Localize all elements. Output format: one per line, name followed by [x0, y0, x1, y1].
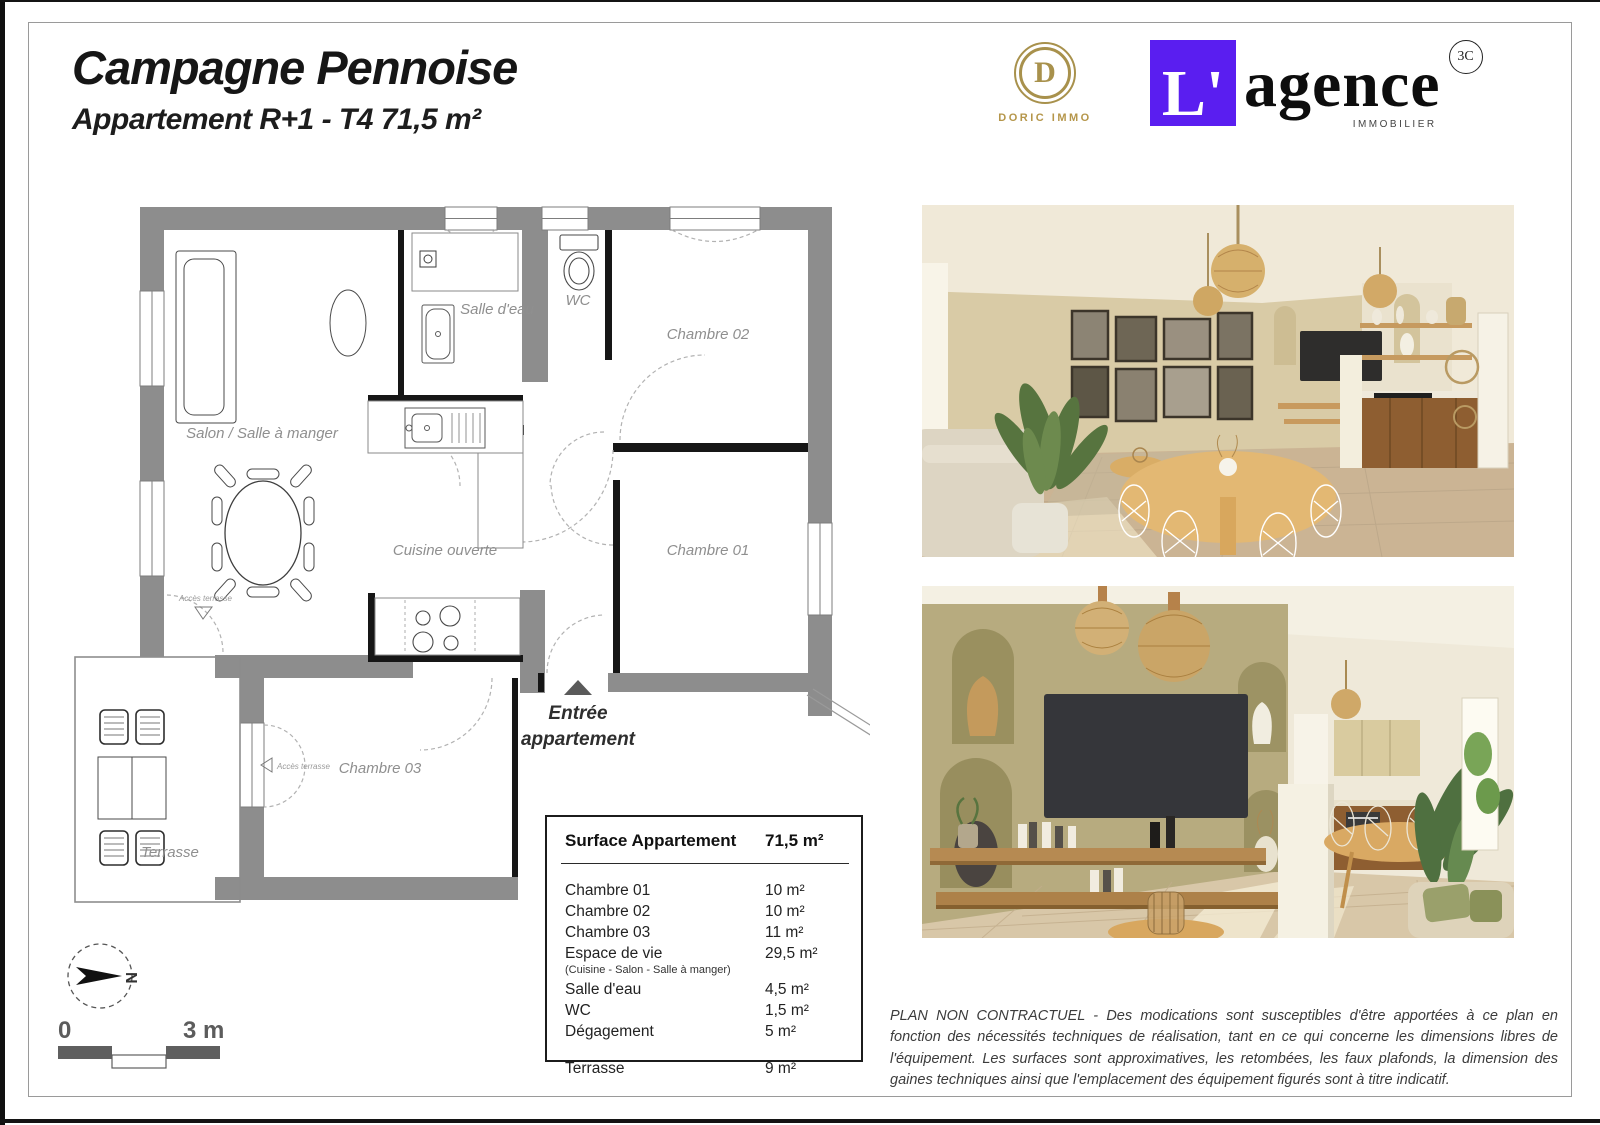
- lagence-logo: L' agence IMMOBILIER 3C: [1150, 40, 1483, 130]
- tv-wall-render: [922, 586, 1514, 938]
- doric-initial: D: [1034, 56, 1056, 90]
- living-room-render: [922, 205, 1514, 557]
- surface-header-label: Surface Appartement: [565, 831, 765, 851]
- entrance-label-1: Entrée: [548, 703, 608, 724]
- room-label-cuisine: Cuisine ouverte: [393, 542, 497, 559]
- render-photo-tv-wall: [922, 586, 1514, 938]
- bathroom-fixtures: [412, 233, 518, 363]
- page-title: Campagne Pennoise: [72, 40, 517, 95]
- white-partition: [1278, 784, 1334, 938]
- table-row: Salle d'eau4,5 m²: [565, 979, 845, 1000]
- table-row-note: (Cuisine - Salon - Salle à manger): [565, 964, 845, 977]
- acces-terrasse-arrow-salon: [195, 607, 212, 619]
- surface-table-rule: [561, 863, 849, 864]
- surface-table: Surface Appartement 71,5 m² Chambre 0110…: [545, 815, 863, 1062]
- table-row: WC1,5 m²: [565, 1000, 845, 1021]
- page-edge-left: [0, 0, 5, 1125]
- scale-bar-segments: [58, 1046, 220, 1068]
- table-row: Terrasse9 m²: [565, 1058, 845, 1079]
- page-edge-bottom: [0, 1119, 1600, 1123]
- room-label-chambre02: Chambre 02: [667, 326, 750, 343]
- tv-screen: [1044, 694, 1248, 818]
- kitchen-sink-counter: [368, 401, 523, 548]
- terrace: [75, 657, 240, 902]
- room-label-salon: Salon / Salle à manger: [186, 425, 339, 442]
- lagence-prefix: L': [1162, 63, 1224, 126]
- sofa-corner: [1408, 882, 1514, 938]
- lagence-caption: IMMOBILIER: [1353, 119, 1437, 130]
- table-row: Chambre 0110 m²: [565, 880, 845, 901]
- acces-terrasse-label-ch03: Accès terrasse: [276, 762, 330, 771]
- dining-table: [212, 463, 314, 603]
- room-label-chambre03: Chambre 03: [339, 760, 422, 777]
- lagence-word: agence: [1244, 54, 1441, 117]
- room-label-terrasse: Terrasse: [141, 844, 199, 861]
- table-row: Chambre 0311 m²: [565, 922, 845, 943]
- room-label-wc: WC: [566, 292, 591, 309]
- room-label-chambre01: Chambre 01: [667, 542, 750, 559]
- table-row: Dégagement5 m²: [565, 1021, 845, 1042]
- surface-header-value: 71,5 m²: [765, 831, 824, 851]
- scale-start-label: 0: [58, 1017, 71, 1044]
- doric-immo-logo: D DORIC IMMO: [985, 42, 1105, 124]
- entrance-arrow-icon: [564, 680, 592, 695]
- lagence-square-icon: L': [1150, 40, 1236, 126]
- table-row: Espace de vie29,5 m²: [565, 943, 845, 964]
- decor-oval: [330, 290, 366, 356]
- acces-terrasse-label-salon: Accès terrasse: [178, 594, 232, 603]
- table-row: Chambre 0210 m²: [565, 901, 845, 922]
- sofa: [176, 251, 236, 423]
- render-photo-living-room: [922, 205, 1514, 557]
- disclaimer-text: PLAN NON CONTRACTUEL - Des modications s…: [890, 1006, 1558, 1092]
- room-label-salle-eau: Salle d'eau: [460, 301, 534, 318]
- lagence-3c-badge: 3C: [1449, 40, 1483, 74]
- scale-end-label: 3 m: [183, 1017, 224, 1044]
- doric-caption: DORIC IMMO: [985, 112, 1105, 124]
- doric-circle-icon: D: [1014, 42, 1076, 104]
- page-subtitle: Appartement R+1 - T4 71,5 m²: [72, 103, 517, 137]
- svg-text:N: N: [122, 972, 139, 984]
- entrance-label-2: appartement: [521, 729, 636, 750]
- toilet-icon: [560, 235, 598, 290]
- page-edge-top: [0, 0, 1600, 2]
- title-block: Campagne Pennoise Appartement R+1 - T4 7…: [72, 40, 517, 137]
- hob-counter: [375, 598, 520, 655]
- north-compass: N: [58, 936, 154, 1018]
- scale-bar: 0 3 m: [55, 1014, 235, 1078]
- north-arrow-icon: N: [58, 936, 154, 1018]
- surface-table-header: Surface Appartement 71,5 m²: [565, 831, 845, 851]
